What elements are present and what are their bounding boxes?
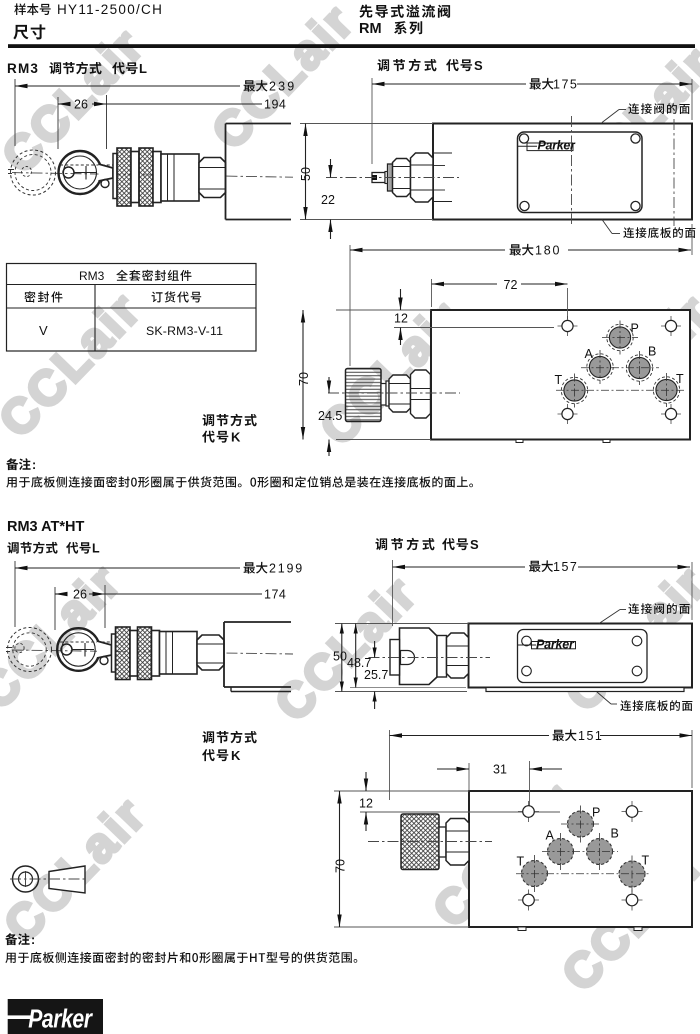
svg-text:Parker: Parker [28,1005,93,1033]
svg-text:SK-RM3-V-11: SK-RM3-V-11 [146,324,223,338]
svg-text:25.7: 25.7 [364,668,388,682]
svg-text:24.5: 24.5 [318,409,342,423]
svg-text:50: 50 [333,650,347,664]
svg-text:70: 70 [297,372,311,386]
svg-text:26: 26 [73,588,87,602]
svg-text:157: 157 [553,560,578,574]
svg-text:12: 12 [359,797,373,811]
svg-text:T: T [676,372,684,386]
svg-text:P: P [592,806,600,820]
svg-text:A: A [546,829,555,843]
svg-text:T: T [642,854,650,868]
svg-text:Parker: Parker [536,638,575,652]
svg-text:151: 151 [578,729,603,743]
svg-text:2199: 2199 [269,562,304,576]
svg-text:RM3: RM3 [79,269,105,283]
svg-text:31: 31 [493,763,507,777]
svg-text:180: 180 [535,244,561,258]
svg-text::: : [32,458,36,472]
svg-text:RM3 AT*HT: RM3 AT*HT [7,519,84,535]
svg-text:HY11-2500/CH: HY11-2500/CH [57,2,163,17]
svg-text:70: 70 [334,859,348,873]
svg-text:K: K [231,430,241,445]
svg-text:L: L [139,61,147,76]
svg-text:B: B [648,345,656,359]
svg-text:V: V [39,323,48,338]
svg-text:S: S [474,58,483,73]
svg-text:RM3: RM3 [7,61,39,76]
svg-text:194: 194 [264,98,286,112]
svg-text::: : [31,933,35,947]
svg-text:A: A [585,347,594,361]
svg-text:T: T [517,855,525,869]
svg-text:175: 175 [553,78,578,92]
svg-text:T: T [555,373,563,387]
svg-text:K: K [231,748,241,763]
svg-text:22: 22 [321,193,335,207]
svg-text:12: 12 [394,312,408,326]
svg-text:72: 72 [504,278,518,292]
svg-text:239: 239 [269,80,296,94]
svg-text:RM: RM [359,21,382,37]
svg-text:50: 50 [299,167,313,181]
svg-text:Parker: Parker [538,139,577,153]
svg-text:B: B [611,827,619,841]
svg-text:174: 174 [264,588,286,602]
svg-text:26: 26 [74,98,88,112]
svg-text:P: P [631,322,639,336]
svg-text:L: L [92,542,100,556]
svg-text:S: S [470,537,479,552]
